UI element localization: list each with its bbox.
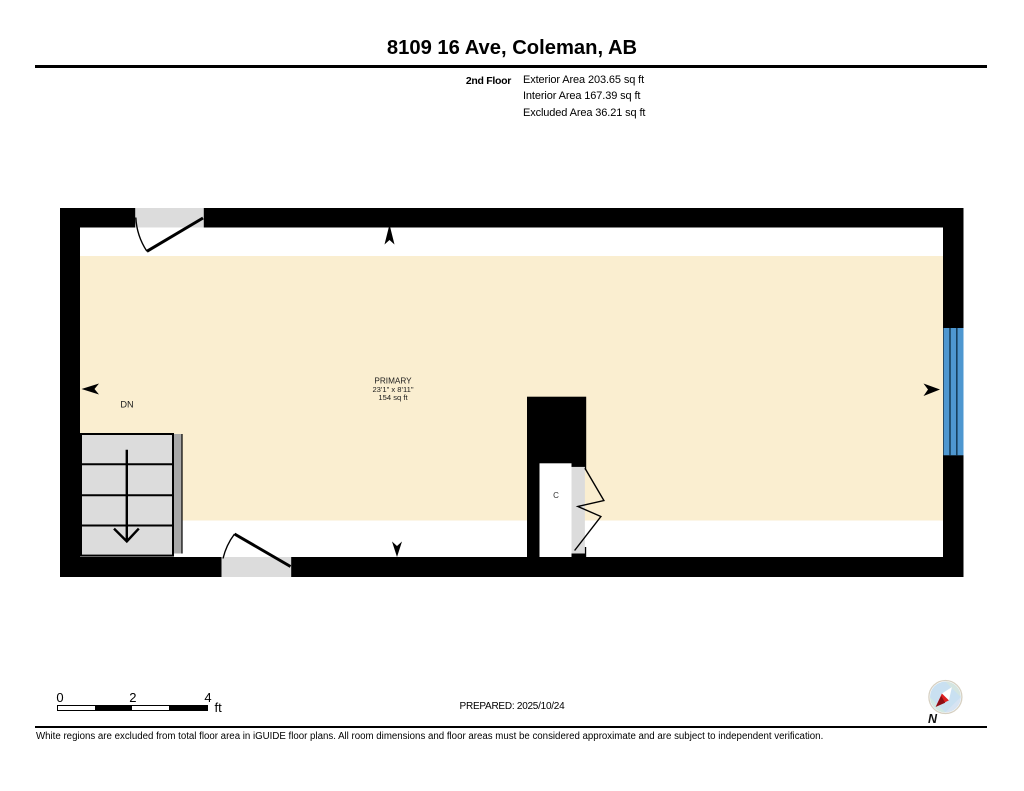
svg-text:C: C xyxy=(553,491,559,500)
svg-text:DN: DN xyxy=(120,400,133,410)
svg-text:N: N xyxy=(928,712,938,726)
svg-text:154 sq ft: 154 sq ft xyxy=(378,393,408,402)
